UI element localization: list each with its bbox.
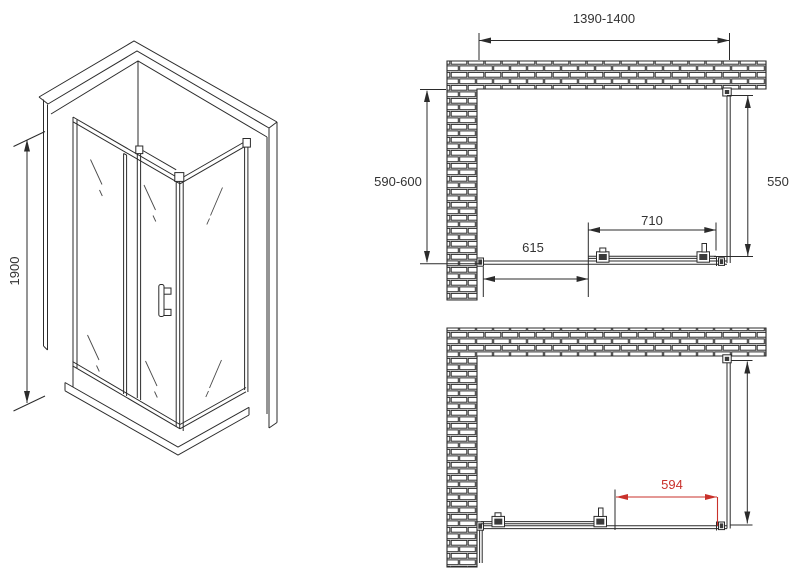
dim-label-depth-range: 590-600	[374, 174, 422, 189]
isometric-view: 1900	[7, 41, 277, 455]
dim-width: 1390-1400	[479, 11, 730, 60]
dim-opening-594: 594	[615, 477, 718, 530]
enclosure-frame-3d	[65, 117, 250, 455]
dim-label-side-550: 550	[767, 174, 789, 189]
side-panel-plan	[723, 88, 731, 263]
door-rail-plan-open	[477, 522, 727, 564]
dim-label-door-710: 710	[641, 213, 663, 228]
dim-side-550: 550	[714, 96, 789, 257]
dim-side-unlabeled	[730, 361, 753, 526]
dim-label-fixed-615: 615	[522, 240, 544, 255]
side-panel-plan-open	[723, 355, 731, 529]
brick-wall-bottom-plan	[447, 328, 766, 567]
wall-profile-cap	[243, 139, 250, 148]
sliding-door-open	[481, 508, 607, 527]
sliding-door-closed	[588, 244, 716, 263]
shower-enclosure-technical-drawing: 1900	[0, 0, 800, 587]
dim-fixed-615: 615	[483, 240, 588, 297]
dim-label-width-range: 1390-1400	[573, 11, 635, 26]
drawing-canvas: 1900	[0, 0, 800, 587]
wall-corner-3d	[39, 41, 277, 428]
door-handle	[159, 285, 171, 317]
dim-height-1900: 1900	[7, 132, 45, 412]
corner-post-cap	[175, 173, 184, 182]
plan-view-bottom: 594	[447, 328, 766, 567]
plan-view-top: 1390-1400 590-600 550 710	[374, 11, 789, 300]
dim-label-height: 1900	[7, 257, 22, 286]
glass-reflection-marks	[88, 160, 223, 398]
dim-label-opening-594: 594	[661, 477, 683, 492]
door-stile-cap	[136, 146, 143, 154]
